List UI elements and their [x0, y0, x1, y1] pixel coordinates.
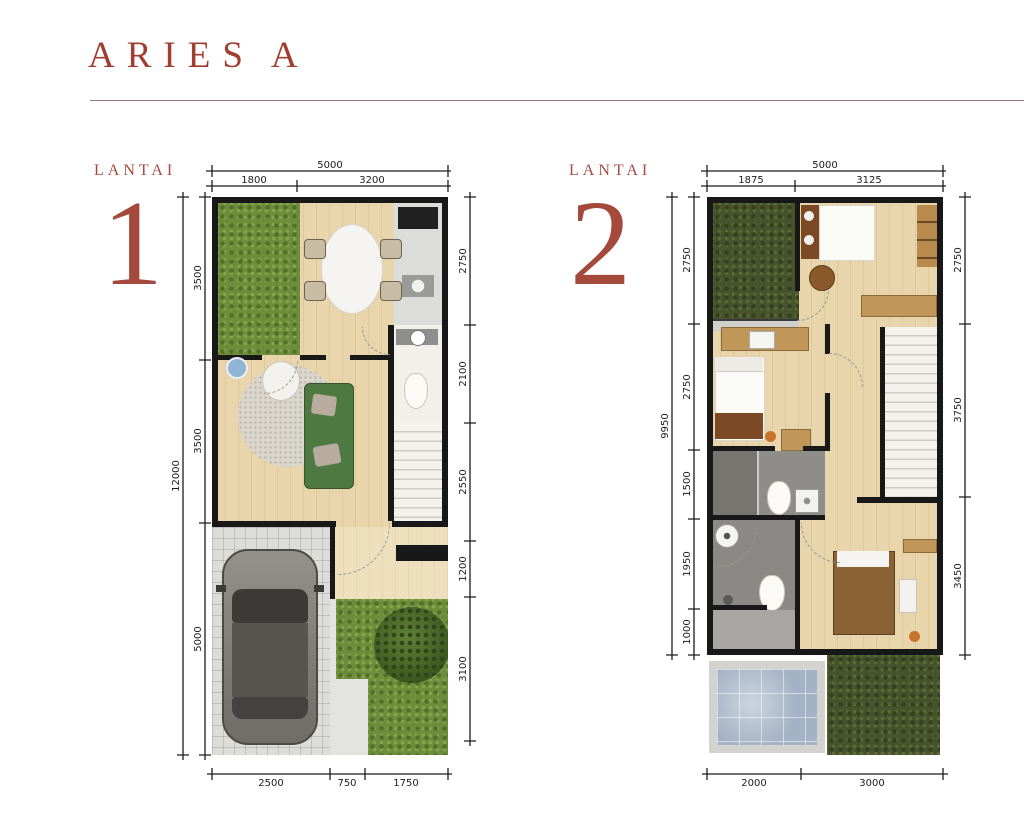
- toilet: [404, 373, 428, 409]
- dim-label: 5000: [812, 160, 837, 171]
- floor2-number: 2: [570, 192, 631, 296]
- dim-label: 5000: [317, 160, 342, 171]
- shower-glass: [757, 451, 759, 520]
- dim-label: 2750: [682, 247, 693, 272]
- dim-label: 1750: [393, 778, 418, 789]
- dim-label: 1950: [682, 551, 693, 576]
- wall: [388, 423, 394, 521]
- floor2-garden-below: [827, 655, 940, 755]
- wall: [825, 393, 830, 451]
- desk1: [861, 295, 937, 317]
- dim-label: 1500: [682, 471, 693, 496]
- car-roof: [232, 623, 308, 697]
- wall: [825, 324, 830, 354]
- dining-chair: [380, 281, 402, 301]
- bed1-pillow-item: [804, 235, 814, 245]
- sofa-cushion: [311, 393, 338, 416]
- floor1-number: 1: [102, 192, 163, 296]
- back-garden: [368, 679, 448, 755]
- lamp: [909, 631, 920, 642]
- floor-vase: [226, 357, 248, 379]
- wall: [880, 327, 885, 497]
- dining-chair: [304, 281, 326, 301]
- car-mirror: [216, 585, 226, 592]
- master-bed-pillows: [837, 551, 889, 567]
- dim-chain: [701, 165, 946, 177]
- garden-wall: [396, 545, 448, 561]
- dim-label: 3750: [953, 397, 964, 422]
- wall: [330, 527, 335, 599]
- dim-label: 1200: [458, 556, 469, 581]
- dim-label: 3125: [856, 175, 881, 186]
- dim-chain: [206, 165, 451, 177]
- dim-label: 3450: [953, 563, 964, 588]
- car-mirror: [314, 585, 324, 592]
- round-table: [809, 265, 835, 291]
- master-cabinet: [903, 539, 937, 553]
- car: [222, 549, 318, 745]
- wall: [937, 197, 943, 655]
- wall: [795, 520, 800, 649]
- wall: [707, 197, 713, 655]
- dim-label: 12000: [171, 460, 182, 492]
- wardrobe1: [917, 205, 937, 267]
- car-windshield: [232, 589, 308, 623]
- dim-chain: [206, 180, 451, 192]
- dim-label: 1875: [738, 175, 763, 186]
- dim-label: 2100: [458, 361, 469, 386]
- tree: [374, 607, 448, 683]
- dim-chain: [702, 768, 948, 780]
- dim-chain: [701, 180, 946, 192]
- floor2-stairs: [885, 327, 937, 497]
- dim-label: 3500: [193, 428, 204, 453]
- dim-chain: [959, 192, 971, 660]
- floor1-plan: [212, 197, 448, 755]
- page-title: ARIESA: [88, 34, 310, 77]
- bench: [899, 579, 917, 613]
- kitchen-sink: [402, 275, 434, 297]
- dining-table: [322, 225, 382, 313]
- dining-chair: [380, 239, 402, 259]
- dim-label: 750: [337, 778, 356, 789]
- laptop: [749, 331, 775, 349]
- dim-label: 5000: [193, 626, 204, 651]
- floor1-stairs: [394, 423, 442, 521]
- dim-label: 1800: [241, 175, 266, 186]
- wall: [300, 355, 326, 360]
- floor-drain: [723, 595, 733, 605]
- dim-label: 1000: [682, 619, 693, 644]
- dim-label: 3500: [193, 265, 204, 290]
- dim-label: 2550: [458, 469, 469, 494]
- dim-chain: [177, 192, 189, 760]
- floor1-front-garden: [218, 203, 300, 355]
- dim-label: 3200: [359, 175, 384, 186]
- floor2-roof-garden: [713, 203, 799, 319]
- bed2-blanket: [715, 413, 763, 439]
- bed1-pillow-item: [804, 211, 814, 221]
- shower: [713, 451, 757, 520]
- dim-label: 3100: [458, 656, 469, 681]
- wall: [212, 197, 448, 203]
- dim-label: 2750: [458, 248, 469, 273]
- toilet: [767, 481, 791, 515]
- skylight-glass: [717, 669, 817, 745]
- wall: [442, 197, 448, 527]
- utility-room: [713, 610, 795, 650]
- title-word-2: A: [271, 35, 310, 76]
- dim-chain: [207, 768, 452, 780]
- dim-label: 2750: [953, 247, 964, 272]
- dim-label: 2750: [682, 374, 693, 399]
- dim-label: 2000: [741, 778, 766, 789]
- cooktop: [398, 207, 438, 229]
- title-word-1: ARIES: [88, 35, 255, 76]
- dim-chain: [199, 192, 211, 760]
- bathroom-sink: [795, 489, 819, 513]
- wall: [212, 197, 218, 527]
- page: ARIESA LANTAI 1 LANTAI 2: [0, 0, 1024, 826]
- lamp: [765, 431, 776, 442]
- bed1: [819, 205, 875, 261]
- dim-chain: [688, 192, 700, 660]
- dim-chain: [666, 192, 678, 660]
- bathroom-sink: [410, 330, 426, 346]
- header-divider: [90, 100, 1024, 101]
- dim-chain: [464, 192, 476, 746]
- wall: [795, 203, 800, 291]
- dim-label: 9950: [660, 413, 671, 438]
- dim-label: 2500: [258, 778, 283, 789]
- bed2-pillows: [715, 357, 763, 372]
- dining-chair: [304, 239, 326, 259]
- car-rear-window: [232, 697, 308, 719]
- wall: [857, 497, 943, 503]
- floor2-plan: [707, 197, 943, 755]
- dim-label: 3000: [859, 778, 884, 789]
- wall: [707, 197, 943, 203]
